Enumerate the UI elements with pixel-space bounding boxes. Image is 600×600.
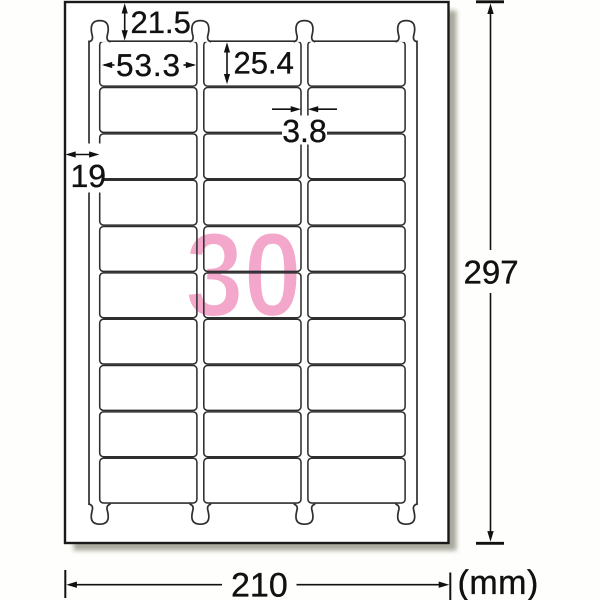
svg-text:210: 210 [231, 567, 288, 600]
svg-text:21.5: 21.5 [131, 5, 191, 40]
svg-text:3.8: 3.8 [282, 113, 327, 149]
svg-text:297: 297 [464, 254, 519, 291]
svg-text:30: 30 [185, 208, 302, 342]
svg-text:25.4: 25.4 [234, 46, 294, 81]
svg-text:(mm): (mm) [458, 564, 539, 600]
svg-text:53.3: 53.3 [116, 47, 181, 83]
svg-text:19: 19 [70, 158, 106, 194]
